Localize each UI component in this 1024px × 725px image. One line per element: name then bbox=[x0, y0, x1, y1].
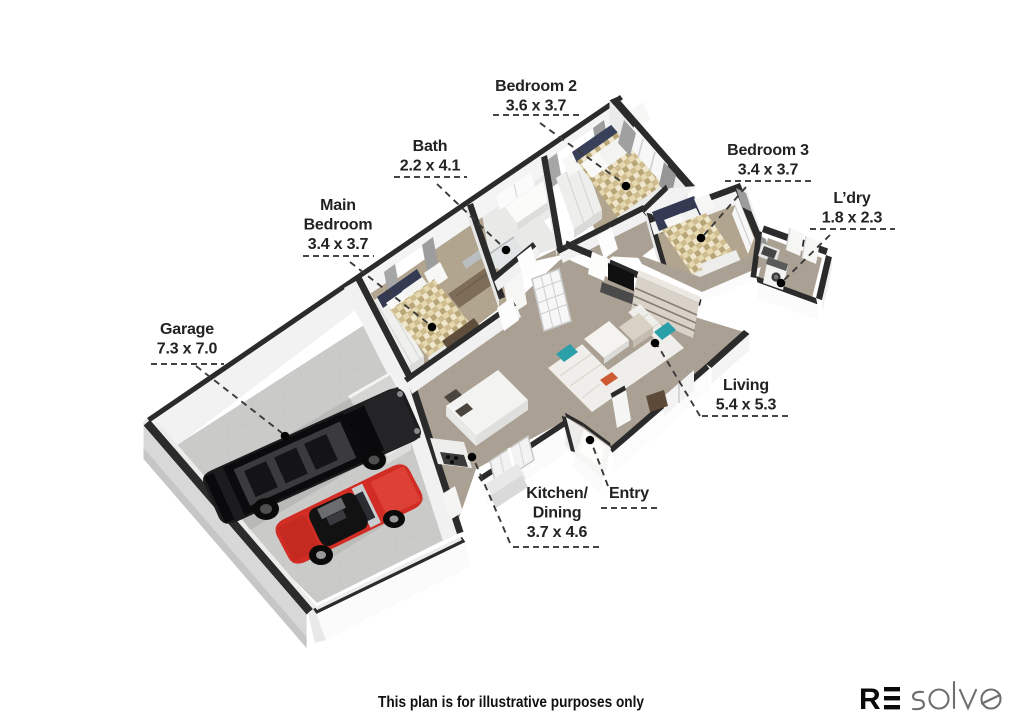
svg-text:Main: Main bbox=[320, 197, 356, 214]
svg-text:L’dry: L’dry bbox=[833, 190, 871, 207]
svg-text:3.6 x 3.7: 3.6 x 3.7 bbox=[506, 98, 567, 115]
svg-text:Bath: Bath bbox=[413, 138, 448, 155]
svg-text:2.2 x 4.1: 2.2 x 4.1 bbox=[400, 158, 461, 175]
svg-text:Bedroom 3: Bedroom 3 bbox=[727, 142, 809, 159]
svg-text:Bedroom 2: Bedroom 2 bbox=[495, 78, 577, 95]
svg-text:Dining: Dining bbox=[533, 505, 582, 522]
svg-text:1.8 x 2.3: 1.8 x 2.3 bbox=[822, 210, 883, 227]
svg-text:Bedroom: Bedroom bbox=[304, 217, 373, 234]
svg-text:Kitchen/: Kitchen/ bbox=[526, 485, 588, 502]
svg-text:3.4 x 3.7: 3.4 x 3.7 bbox=[308, 236, 369, 253]
svg-text:3.7 x 4.6: 3.7 x 4.6 bbox=[527, 524, 588, 541]
svg-text:Garage: Garage bbox=[160, 321, 214, 338]
svg-text:5.4 x 5.3: 5.4 x 5.3 bbox=[716, 397, 777, 414]
svg-text:7.3 x 7.0: 7.3 x 7.0 bbox=[157, 341, 218, 358]
svg-text:R: R bbox=[859, 683, 881, 716]
svg-text:Entry: Entry bbox=[609, 485, 649, 502]
svg-text:3.4 x 3.7: 3.4 x 3.7 bbox=[738, 162, 799, 179]
svg-text:Living: Living bbox=[723, 377, 769, 394]
svg-text:This plan is for illustrative: This plan is for illustrative purposes o… bbox=[378, 694, 644, 711]
